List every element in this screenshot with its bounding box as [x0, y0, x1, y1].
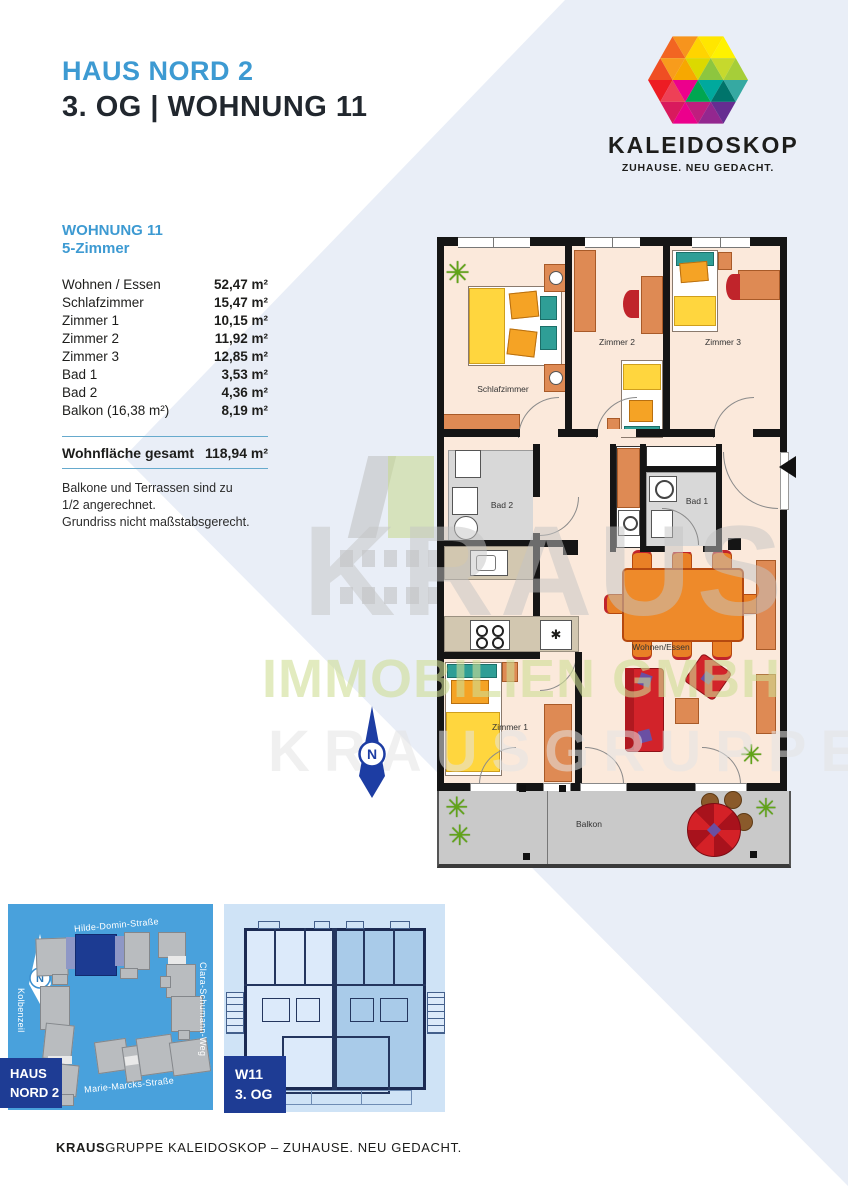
chair: [632, 550, 652, 569]
wall: [716, 444, 722, 552]
building: [178, 1030, 190, 1040]
footer-text: GRUPPE KALEIDOSKOP – ZUHAUSE. NEU GEDACH…: [105, 1140, 462, 1155]
desk: [738, 270, 780, 300]
wall: [437, 237, 444, 790]
blanket: [623, 364, 661, 390]
wall: [780, 237, 787, 790]
wall: [575, 652, 582, 791]
building: [35, 937, 68, 976]
toilet: [454, 516, 478, 540]
wall-pillar: [728, 538, 741, 550]
balcony: Balkon ✳ ✳ ✳: [437, 791, 791, 868]
window: [692, 237, 750, 248]
wardrobe: [574, 250, 596, 332]
wardrobe: [544, 704, 572, 782]
nightstand: [718, 252, 732, 270]
page-title: HAUS NORD 2 3. OG | WOHNUNG 11: [62, 56, 368, 124]
highlighted-building: [75, 934, 117, 976]
haus-label-box: HAUS NORD 2: [0, 1058, 62, 1108]
sideboard: [756, 674, 776, 734]
nightstand: [502, 662, 518, 682]
blanket: [674, 296, 716, 326]
shower: [455, 450, 481, 478]
cabinet: [617, 448, 640, 508]
footer-brand: KRAUS: [56, 1140, 105, 1155]
pillow: [509, 291, 540, 320]
blanket: [469, 288, 505, 364]
sideboard: [756, 560, 776, 650]
room-label: Schlafzimmer: [455, 384, 551, 394]
pillow: [679, 261, 709, 283]
building: [160, 976, 171, 988]
unit-panel-title: WOHNUNG 11: [62, 222, 272, 239]
stairs: [427, 992, 445, 1034]
wall: [640, 444, 646, 552]
stairs: [226, 992, 244, 1034]
watermark-shape: [388, 456, 434, 538]
window: [458, 237, 530, 248]
room-label: Wohnen/Essen: [611, 642, 711, 652]
floorplan: ✳ Schlafzimmer Zimmer 2 Zimmer 3 Bad 2: [437, 234, 787, 874]
north-label: N: [367, 746, 377, 762]
building: [168, 956, 186, 964]
plant-icon: ✳: [445, 256, 470, 291]
balcony-divider: [547, 791, 548, 864]
room-label: Balkon: [557, 819, 621, 829]
backrest: [625, 668, 634, 750]
divider: [62, 468, 268, 469]
stove: [470, 620, 510, 650]
wall: [640, 466, 722, 472]
building-title: HAUS NORD 2: [62, 56, 368, 87]
plant-icon: ✳: [448, 819, 471, 852]
room-label: Zimmer 3: [691, 337, 755, 347]
room-label: Zimmer 1: [475, 722, 545, 732]
wall: [610, 444, 616, 552]
building: [124, 1055, 138, 1066]
expose-page: HAUS NORD 2 3. OG | WOHNUNG 11: [0, 0, 848, 1200]
wall: [640, 546, 665, 552]
room-label: Bad 2: [477, 500, 527, 510]
wall: [663, 237, 670, 437]
dining-table: [622, 568, 744, 642]
desk-chair: [623, 290, 639, 318]
sink: [452, 487, 478, 515]
chair: [712, 641, 732, 660]
unit-panel-subtitle: 5-Zimmer: [62, 240, 272, 257]
wall: [444, 540, 533, 546]
wall: [437, 652, 540, 659]
wall: [533, 540, 563, 547]
desk-chair: [726, 274, 740, 300]
divider: [62, 436, 268, 437]
plant-icon: ✳: [755, 793, 777, 824]
wall-pillar: [563, 540, 578, 555]
cushion: [540, 296, 557, 320]
sink: [649, 476, 677, 502]
chair: [604, 594, 623, 614]
notes: Balkone und Terrassen sind zu 1/2 angere…: [62, 480, 292, 531]
building: [120, 968, 138, 979]
building: [124, 932, 150, 970]
room-label: Zimmer 2: [585, 337, 649, 347]
entrance-arrow-icon: [779, 456, 796, 478]
street-label: Clara-Schumann-Weg: [198, 962, 208, 1056]
plant-icon: ✳: [740, 740, 763, 771]
chair: [712, 550, 732, 569]
desk: [641, 276, 663, 334]
logo-tagline: ZUHAUSE. NEU GEDACHT.: [608, 162, 788, 174]
logo-wordmark: KALEIDOSKOP: [608, 132, 788, 159]
headboard: [447, 664, 497, 678]
building: [66, 937, 75, 969]
kaleidoskop-hexagon-icon: [648, 36, 748, 124]
room-label: Bad 1: [675, 496, 719, 506]
footer: KRAUSGRUPPE KALEIDOSKOP – ZUHAUSE. NEU G…: [56, 1140, 462, 1155]
pillow: [451, 680, 489, 704]
street-label: Kolbenzeil: [16, 988, 26, 1033]
wall: [703, 546, 722, 552]
cushion: [540, 326, 557, 350]
window: [585, 237, 640, 248]
dishwasher: ✱: [540, 620, 572, 650]
coffee-table: [675, 698, 699, 724]
parasol: [687, 803, 741, 857]
north-arrow-icon: N: [352, 704, 392, 802]
unit-title: 3. OG | WOHNUNG 11: [62, 91, 368, 124]
pillow: [507, 328, 538, 357]
wall: [565, 237, 572, 437]
building: [52, 974, 68, 985]
chair: [672, 550, 692, 569]
building: [115, 936, 124, 966]
washing-machine: [618, 510, 640, 536]
unit-label-box: W11 3. OG: [224, 1056, 286, 1113]
kitchen-sink: [470, 550, 508, 576]
building: [158, 932, 186, 958]
unit-panel: WOHNUNG 11 5-Zimmer Wohnen / Essen52,47 …: [62, 222, 272, 257]
